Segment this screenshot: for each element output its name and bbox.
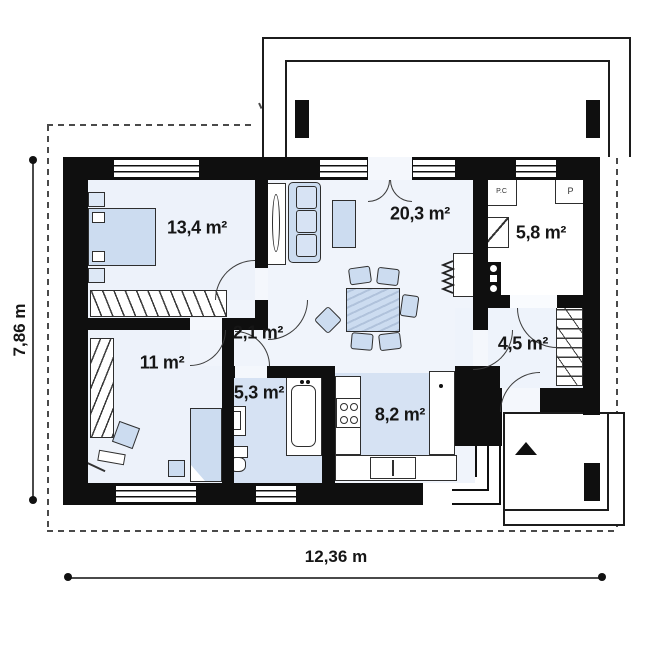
wall-bathroom-top-right xyxy=(267,366,322,378)
window xyxy=(412,159,456,178)
wall-living-hall-stub xyxy=(473,308,488,330)
wall-utility-hall-left xyxy=(473,295,510,308)
sofa-cushion xyxy=(296,186,317,209)
room-label-bedroom-2: 11 m² xyxy=(140,353,185,374)
bathtub-icon xyxy=(286,376,322,456)
burner-icon xyxy=(340,403,348,411)
stove-icon xyxy=(336,398,361,428)
room-label-bathroom: 5,3 m² xyxy=(234,383,284,404)
tv-icon xyxy=(272,194,280,252)
pillow-icon xyxy=(92,212,105,223)
faucet-icon xyxy=(300,380,304,384)
sofa-cushion xyxy=(296,210,317,233)
wall-bedroom2-bathroom xyxy=(222,330,234,483)
wall-bathroom-kitchen xyxy=(322,366,335,483)
dining-table-icon xyxy=(346,288,400,332)
nightstand-icon xyxy=(88,192,105,207)
roof-outline-top-left xyxy=(47,124,255,126)
pillow-icon xyxy=(92,251,105,262)
wall-porch-left xyxy=(480,388,502,446)
tv-cabinet-icon xyxy=(266,183,286,265)
wall-bedroom-living xyxy=(255,180,268,268)
bedroom-door-opening xyxy=(255,268,268,300)
dimension-dot xyxy=(29,496,37,504)
chair-icon xyxy=(350,332,373,351)
water-heater-icon xyxy=(486,262,501,296)
burner-icon xyxy=(350,416,358,424)
burner-icon xyxy=(350,403,358,411)
wall-living-utility xyxy=(473,180,488,295)
stool-icon xyxy=(168,460,185,477)
washing-machine-box: P xyxy=(555,177,586,204)
blanket-fold xyxy=(191,465,205,481)
radiator-zigzag-icon xyxy=(441,260,455,294)
faucet-icon xyxy=(306,380,310,384)
wall-bedroom-living-stub xyxy=(255,300,268,318)
wall-right xyxy=(583,157,600,415)
chair-icon xyxy=(400,294,420,318)
chair-icon xyxy=(378,332,402,352)
bathroom-door-opening xyxy=(235,366,267,378)
washer-dryer-label: P.C xyxy=(496,188,507,195)
terrace-pillar-right xyxy=(586,100,600,138)
porch-pillar xyxy=(584,463,600,501)
terrace-door-opening xyxy=(368,157,412,180)
window xyxy=(255,485,297,503)
sink-divider xyxy=(392,460,394,476)
window xyxy=(319,159,368,178)
bedroom2-door-opening xyxy=(190,318,222,330)
dimension-dot xyxy=(64,573,72,581)
dimension-dot xyxy=(598,573,606,581)
fireplace-icon xyxy=(453,253,475,297)
burner-icon xyxy=(340,416,348,424)
wall-porch-top xyxy=(540,388,583,412)
wall-left xyxy=(63,157,88,505)
dimension-line-width xyxy=(68,577,603,579)
chair-icon xyxy=(348,266,372,286)
room-label-hall: 2,1 m² xyxy=(233,323,283,344)
coffee-table-icon xyxy=(332,200,356,248)
chair-icon xyxy=(376,267,400,287)
heater-dial xyxy=(490,265,497,272)
single-bed-icon xyxy=(190,408,222,482)
dimension-line-height xyxy=(32,160,34,500)
dimension-label-width: 12,36 m xyxy=(305,547,367,567)
terrace-pillar-left xyxy=(295,100,309,138)
counter-dot xyxy=(439,384,443,388)
window xyxy=(515,159,557,178)
wall-utility-hall-right xyxy=(557,295,583,308)
bathtub-basin xyxy=(291,385,316,447)
window xyxy=(115,485,197,503)
room-label-living-room: 20,3 m² xyxy=(390,204,450,225)
washer-dryer-box: P.C xyxy=(486,177,517,206)
dimension-label-height: 7,86 m xyxy=(10,304,30,357)
utility-door-opening xyxy=(510,295,557,308)
roof-outline-left xyxy=(47,125,49,532)
window xyxy=(113,159,200,178)
nightstand-icon xyxy=(88,268,105,283)
kitchen-sink-icon xyxy=(370,457,416,479)
room-label-kitchen: 8,2 m² xyxy=(375,405,425,426)
heater-dial xyxy=(490,285,497,292)
dimension-dot xyxy=(29,156,37,164)
sofa-icon xyxy=(288,182,321,263)
wardrobe-icon xyxy=(90,290,227,317)
wall-bathroom-top-left xyxy=(222,366,235,378)
entrance-arrow-icon xyxy=(515,442,537,455)
heater-panel xyxy=(490,275,497,282)
sofa-cushion xyxy=(296,234,317,257)
washing-machine-label: P xyxy=(567,186,573,196)
wardrobe-icon xyxy=(556,300,583,386)
room-label-bedroom: 13,4 m² xyxy=(167,218,227,239)
wall-bedroom-bottom xyxy=(88,318,190,330)
room-label-entrance-hall: 4,5 m² xyxy=(498,334,548,355)
floor-plan-canvas: P.C P xyxy=(0,0,660,657)
terrace-inner-edge xyxy=(285,60,610,157)
roof-outline-bottom xyxy=(47,530,618,532)
wardrobe-icon xyxy=(90,338,114,438)
room-label-utility-room: 5,8 m² xyxy=(516,223,566,244)
